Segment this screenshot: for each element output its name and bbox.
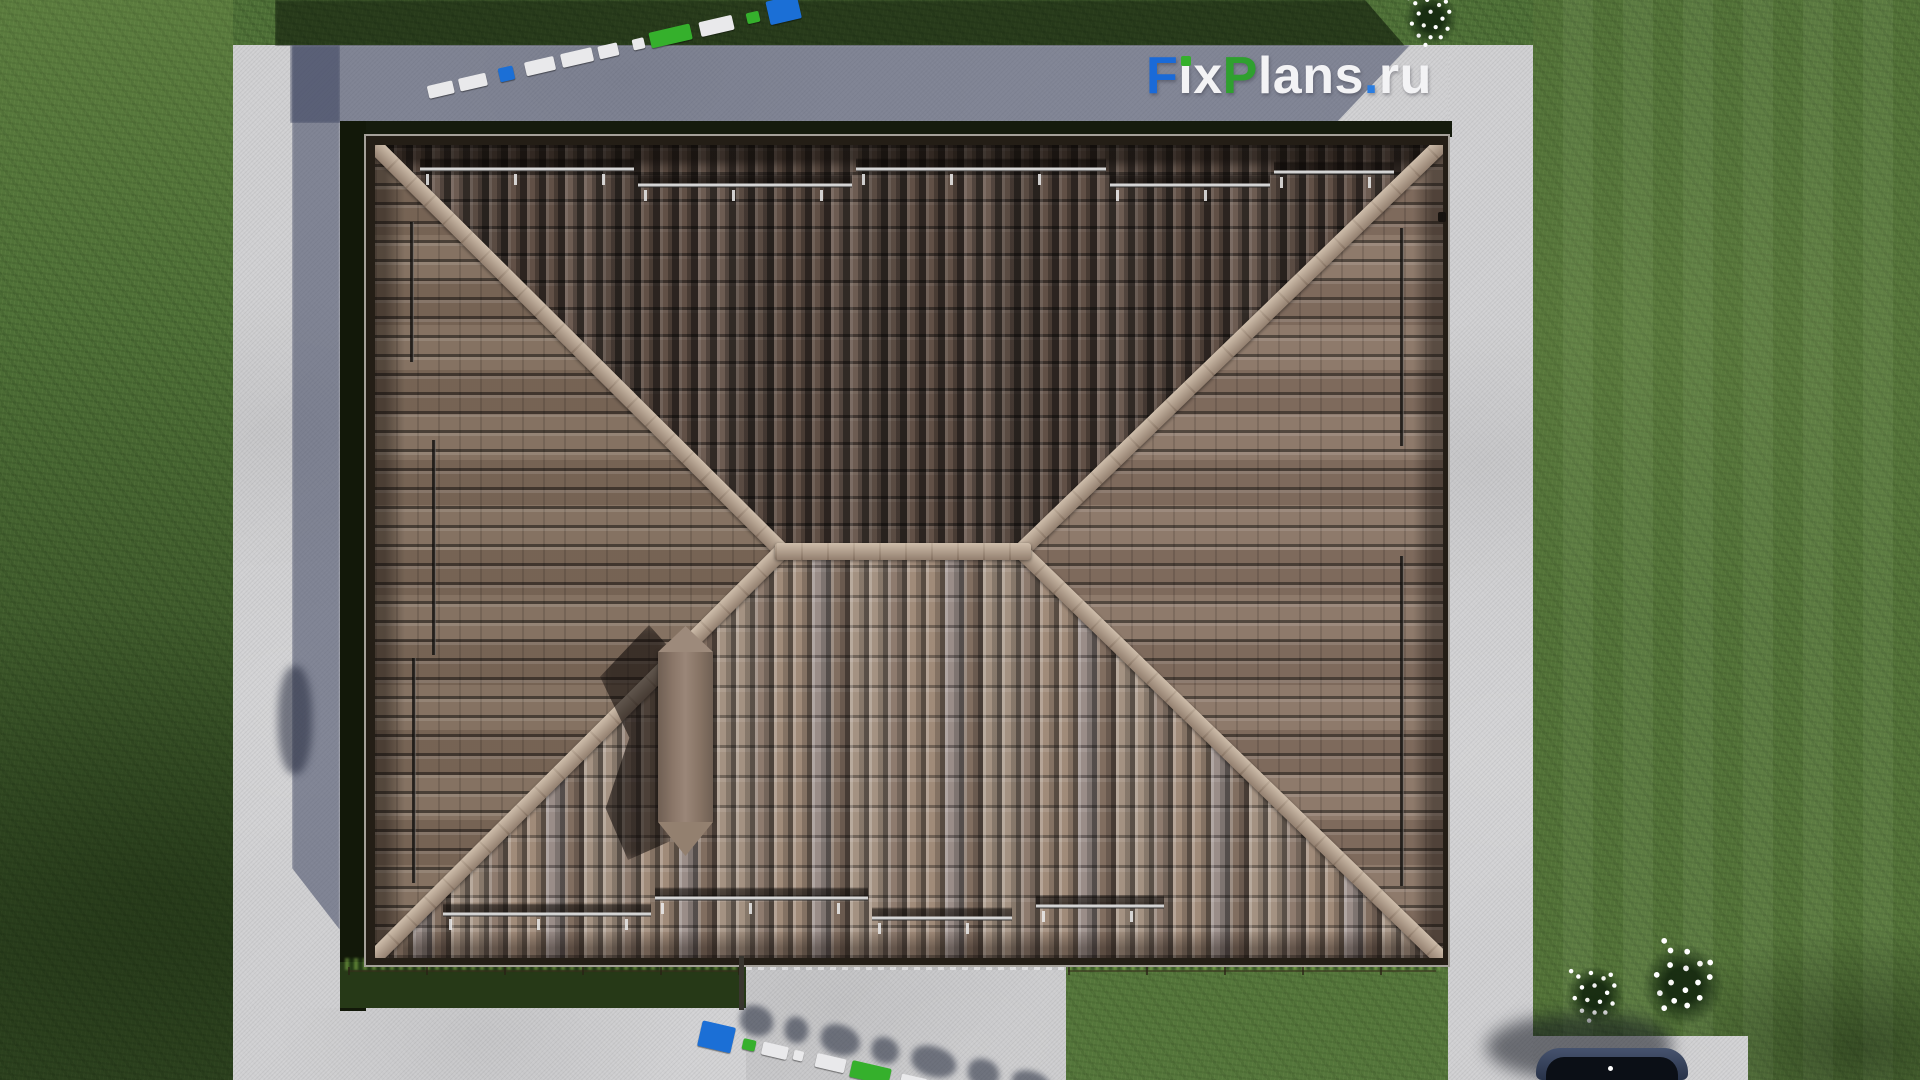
- lawn-bottom-middle: [1066, 958, 1448, 1080]
- flower-petals: [1569, 969, 1574, 974]
- snow-rail-right-1: [1400, 228, 1404, 446]
- watermark-i-dot: [1181, 56, 1191, 66]
- slab: [560, 47, 594, 68]
- slab: [458, 72, 488, 91]
- slab: [427, 80, 455, 99]
- slab: [698, 14, 735, 36]
- snow-rail-top-2: [638, 174, 852, 190]
- slab: [597, 42, 619, 59]
- roof-plan-render: FıxPlans.ru: [0, 0, 1920, 1080]
- watermark-letter: ru: [1379, 47, 1432, 105]
- slab: [649, 23, 694, 48]
- flower-petals: [1661, 937, 1668, 944]
- snow-rail-bottom-2: [655, 887, 868, 903]
- watermark-letter: P: [1223, 47, 1258, 105]
- slab: [631, 37, 645, 50]
- house-shadow-left-walkway: [292, 45, 340, 930]
- snow-rail-top-3: [856, 158, 1106, 174]
- ridge-cap: [775, 543, 1031, 560]
- lawn-right-area: [1533, 0, 1920, 1080]
- slab: [497, 65, 515, 82]
- snow-rail-bottom-3: [872, 907, 1012, 923]
- chimney: [658, 652, 713, 822]
- watermark-3d-bottom: [700, 998, 1020, 1080]
- snow-rail-bottom-4: [1036, 895, 1164, 911]
- watermark-letter: F: [1146, 47, 1178, 105]
- gutter-bracket-icon: [1438, 212, 1446, 222]
- snow-rail-bottom-1: [443, 903, 651, 919]
- snow-rail-left-3: [412, 658, 416, 883]
- flower-bed-top: [1403, 0, 1459, 44]
- garden-edging-right: [1068, 970, 1436, 972]
- garden-edging-left: [348, 970, 740, 972]
- snow-rail-top-5: [1274, 161, 1394, 177]
- watermark-letter: x: [1193, 47, 1222, 105]
- watermark-letter: .: [1364, 47, 1379, 105]
- snow-rail-right-2: [1400, 556, 1404, 886]
- slab: [742, 1038, 757, 1052]
- chimney-shadow-on-walkway: [278, 666, 312, 774]
- foliage: [1403, 0, 1459, 44]
- hip-roof: [375, 145, 1443, 958]
- shaded-grass-strip-left: [340, 121, 366, 1011]
- watermark-fixplans: FıxPlans.ru: [1146, 46, 1432, 106]
- snow-rail-top-1: [420, 158, 634, 174]
- slab: [899, 1073, 927, 1080]
- car-antenna-dot: [1608, 1066, 1613, 1071]
- slab: [524, 56, 556, 76]
- snow-rail-left-1: [410, 222, 414, 362]
- snow-rail-top-4: [1110, 174, 1270, 190]
- slab: [814, 1053, 846, 1073]
- slab: [745, 10, 760, 24]
- slab: [793, 1050, 805, 1062]
- slab: [849, 1060, 892, 1080]
- parked-car: [1536, 1048, 1688, 1080]
- watermark-3d-top: [428, 18, 768, 118]
- walkway-right-band: [1448, 45, 1533, 1080]
- watermark-letter: lans: [1258, 47, 1364, 105]
- slab: [761, 1041, 789, 1060]
- snow-rail-left-2: [432, 440, 436, 655]
- letter-shadow: [965, 1056, 1002, 1080]
- slab: [697, 1020, 736, 1053]
- lawn-left-edge: [0, 0, 233, 1080]
